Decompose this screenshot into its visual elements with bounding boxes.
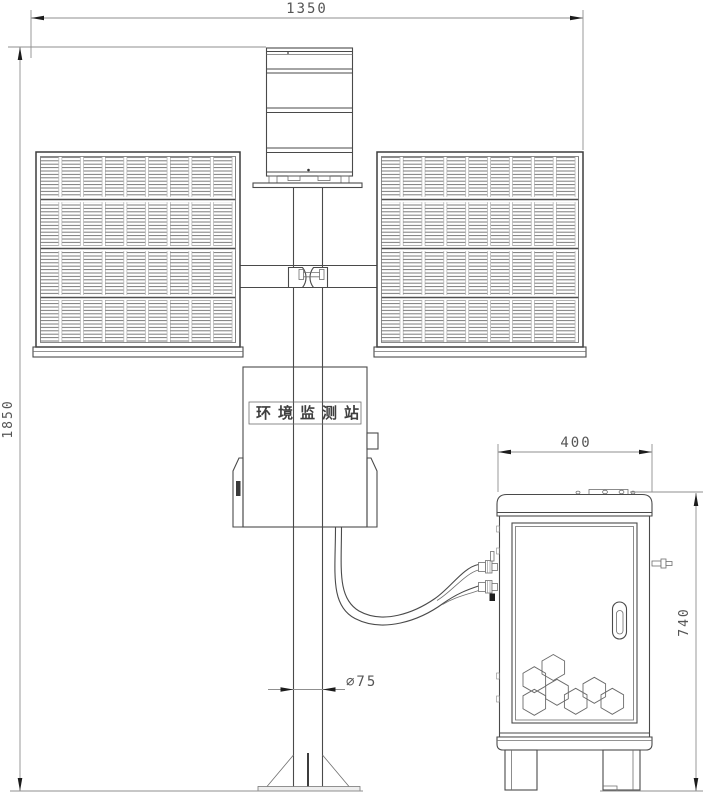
door-handle bbox=[613, 602, 627, 639]
side-probe-fitting bbox=[652, 559, 672, 568]
dimension-overall-width: 1350 bbox=[31, 1, 583, 150]
cabinet-door bbox=[512, 523, 637, 723]
technical-drawing-page: 环境监测站 bbox=[0, 0, 716, 800]
small-pin bbox=[491, 552, 495, 562]
panel-rail-right bbox=[374, 347, 586, 357]
panel-rail-left bbox=[33, 347, 243, 357]
cable-gland-upper bbox=[479, 561, 498, 574]
cabinet-legs bbox=[505, 750, 640, 791]
overall-width-value: 1350 bbox=[286, 1, 328, 17]
hexagon-vent-pattern bbox=[523, 655, 624, 716]
cylinder-feet bbox=[269, 176, 349, 183]
pole-diameter-value: ∅75 bbox=[346, 674, 377, 690]
cylinder-base-plate bbox=[253, 183, 362, 188]
cabinet-bottom-cap bbox=[497, 737, 652, 750]
station-label-text: 环境监测站 bbox=[256, 404, 366, 422]
equipment-cabinet bbox=[479, 490, 673, 792]
cable-gland-lower bbox=[479, 581, 498, 594]
sensor-cylinder bbox=[253, 48, 362, 188]
base-plate bbox=[258, 787, 360, 792]
station-box-body bbox=[243, 367, 367, 527]
station-control-box: 环境监测站 bbox=[233, 367, 378, 527]
signal-cable bbox=[335, 527, 479, 625]
cabinet-width-value: 400 bbox=[560, 435, 591, 451]
solar-panel-left bbox=[33, 152, 243, 357]
cabinet-door-inner bbox=[516, 527, 634, 721]
station-side-flange-right bbox=[367, 458, 377, 527]
station-side-tab bbox=[367, 433, 378, 449]
solar-panel-right bbox=[374, 152, 586, 357]
pole-base bbox=[258, 753, 360, 791]
cabinet-height-value: 740 bbox=[677, 607, 692, 636]
overall-height-value: 1850 bbox=[1, 399, 16, 438]
small-black-fitting bbox=[490, 594, 496, 602]
station-vent bbox=[236, 481, 241, 496]
environmental-station-drawing: 环境监测站 bbox=[0, 0, 716, 800]
dimension-cabinet-width: 400 bbox=[498, 435, 652, 492]
pole-clamp bbox=[289, 268, 328, 288]
